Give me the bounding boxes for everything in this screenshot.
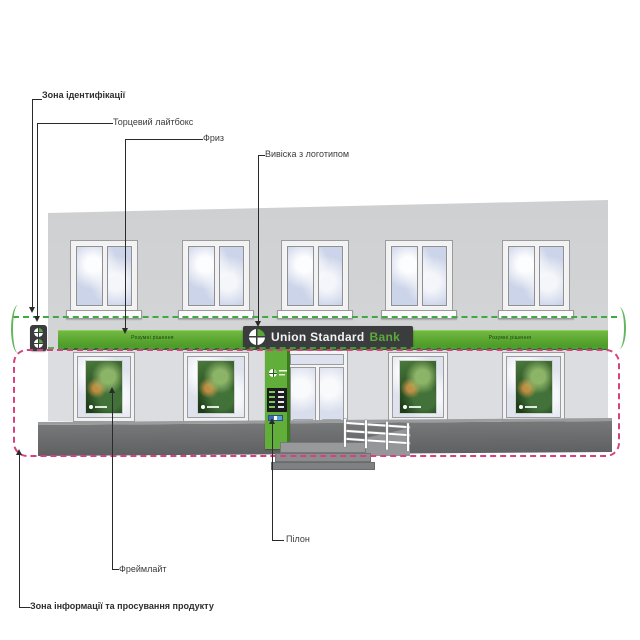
- end-lightbox: [30, 325, 47, 351]
- leader-arrow: [255, 321, 261, 327]
- clover-logo-icon: [34, 339, 43, 348]
- window-mullion: [102, 246, 108, 306]
- clover-logo-icon: [249, 329, 265, 345]
- leader-line: [37, 123, 38, 316]
- frieze-slogan-left: Розумні рішення: [70, 335, 235, 341]
- upper-window: [281, 240, 349, 312]
- leader-arrow: [122, 328, 128, 334]
- entrance-step: [271, 462, 375, 470]
- leader-line: [32, 99, 42, 100]
- leader-arrow: [269, 418, 275, 424]
- brand-accent: Bank: [370, 330, 401, 344]
- leader-line: [272, 424, 273, 541]
- label-framelight: Фреймлайт: [119, 564, 166, 574]
- leader-line: [37, 123, 113, 124]
- clover-logo-icon: [34, 328, 43, 337]
- label-info-zone: Зона інформації та просування продукту: [30, 601, 214, 611]
- main-sign: Union Standard Bank: [243, 326, 413, 348]
- identification-zone-bracket-right: [612, 307, 626, 349]
- leader-line: [272, 540, 284, 541]
- window-mullion: [214, 246, 220, 306]
- label-sign-with-logo: Вивіска з логотипом: [265, 149, 349, 159]
- upper-window: [502, 240, 570, 312]
- window-mullion: [417, 246, 423, 306]
- leader-line: [125, 139, 203, 140]
- leader-arrow: [16, 449, 22, 455]
- leader-line: [19, 455, 20, 608]
- leader-line: [258, 155, 265, 156]
- label-identification-zone: Зона ідентифікації: [42, 90, 125, 100]
- identification-zone-outline-top: [13, 316, 617, 318]
- leader-arrow: [109, 387, 115, 393]
- window-mullion: [313, 246, 319, 306]
- frieze-slogan-right: Розумні рішення: [420, 335, 600, 341]
- brand-name: Union Standard: [271, 330, 365, 344]
- leader-line: [32, 99, 33, 307]
- leader-arrow: [34, 316, 40, 322]
- leader-arrow: [29, 307, 35, 313]
- window-mullion: [534, 246, 540, 306]
- label-frieze: Фриз: [203, 133, 224, 143]
- leader-line: [112, 392, 113, 570]
- label-end-lightbox: Торцевий лайтбокс: [113, 117, 193, 127]
- label-pylon: Пілон: [286, 534, 310, 544]
- facade-branding-diagram: Розумні рішення Розумні рішення Union St…: [0, 0, 640, 640]
- info-zone-outline: [13, 349, 620, 457]
- identification-zone-bracket-left: [11, 305, 25, 353]
- leader-line: [112, 569, 119, 570]
- upper-window: [70, 240, 138, 312]
- leader-line: [125, 139, 126, 328]
- upper-window: [385, 240, 453, 312]
- leader-line: [258, 155, 259, 321]
- upper-window: [182, 240, 250, 312]
- leader-line: [19, 607, 30, 608]
